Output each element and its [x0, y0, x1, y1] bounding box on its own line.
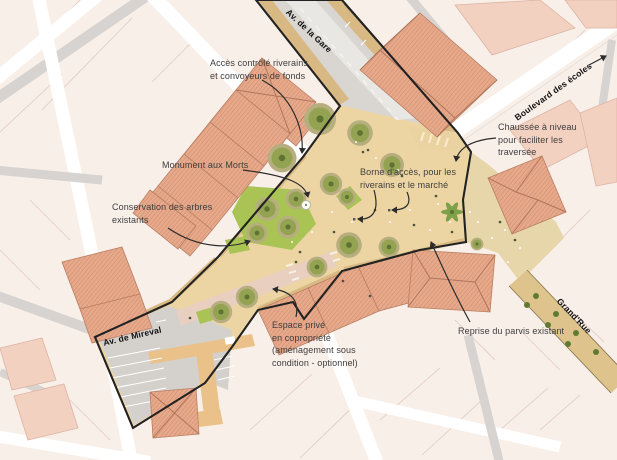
- monument: [302, 201, 311, 210]
- annotation-acces-controle: Accès contrôlé riverains et convoyeurs d…: [210, 57, 308, 82]
- map-canvas: Av. de la Gare Boulevard des écoles Gran…: [0, 0, 617, 460]
- site-plan: Av. de la Gare Boulevard des écoles Gran…: [0, 0, 617, 460]
- annotation-conservation: Conservation des arbres existants: [112, 201, 212, 226]
- annotation-monument: Monument aux Morts: [162, 159, 248, 172]
- annotation-borne-acces: Borne d'accès, pour les riverains et le …: [360, 166, 456, 191]
- annotation-reprise-parvis: Reprise du parvis existant: [458, 325, 564, 338]
- annotation-espace-prive: Espace privé en copropriété (aménagement…: [272, 319, 358, 369]
- annotation-chaussee: Chaussée à niveau pour faciliter les tra…: [498, 121, 577, 159]
